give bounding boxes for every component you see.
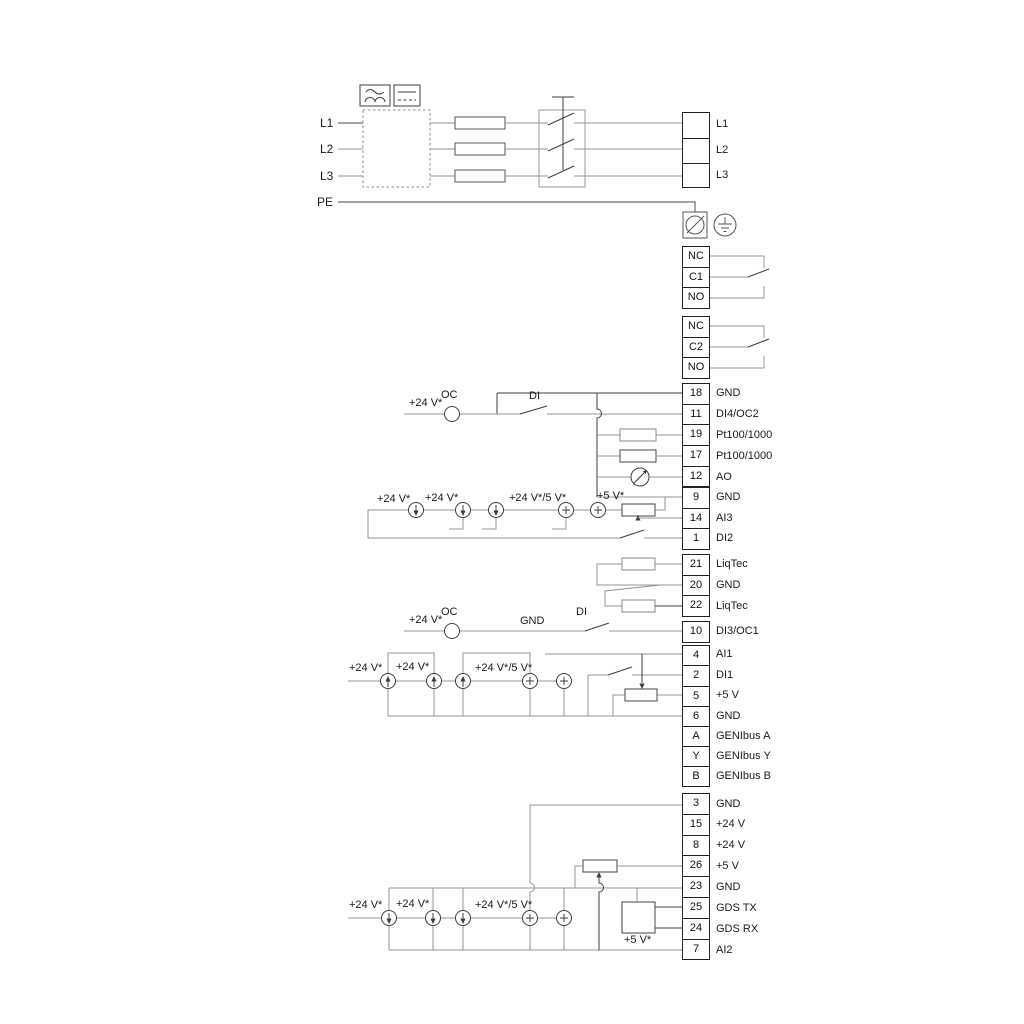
- terminal-2: 2: [683, 665, 709, 685]
- terminal-17: 17: [683, 445, 709, 466]
- potentiometer: [613, 654, 682, 716]
- power24-terminal-block: 3 15 8 26 23 25 24 7: [682, 793, 710, 960]
- current-source-arrow: [382, 911, 397, 926]
- terminal-8: 8: [683, 835, 709, 856]
- label-oc: OC: [441, 389, 458, 401]
- terminal-label: +5 V: [716, 685, 739, 705]
- fuse-l2: [455, 143, 505, 155]
- terminal-label: Pt100/1000: [716, 446, 772, 466]
- terminal-18: 18: [683, 384, 709, 404]
- phase-label-l2: L2: [320, 142, 333, 156]
- gnd-bus: [597, 393, 602, 497]
- terminal-label: GND: [716, 575, 740, 595]
- label-plus24v: +24 V*: [396, 898, 429, 910]
- terminal-20: 20: [683, 575, 709, 596]
- voltage-source-plus: [523, 674, 538, 689]
- terminal-22: 22: [683, 595, 709, 616]
- terminal-1: 1: [683, 528, 709, 549]
- terminal-24: 24: [683, 918, 709, 939]
- current-source-arrow: [456, 911, 471, 926]
- potentiometer: [622, 497, 682, 521]
- resistor: [620, 450, 656, 462]
- terminal-10: 10: [683, 622, 709, 642]
- terminal-a: A: [683, 727, 709, 746]
- terminal-11: 11: [683, 404, 709, 425]
- terminal-label: GDS RX: [716, 919, 758, 939]
- current-source-arrow: [426, 911, 441, 926]
- label-di: DI: [576, 606, 587, 618]
- terminal-label: AI3: [716, 508, 733, 528]
- terminal-19: 19: [683, 424, 709, 445]
- terminal-l1: [683, 113, 709, 138]
- terminal-nc2: NC: [683, 317, 709, 337]
- gnd3-drop: [530, 805, 535, 910]
- label-di: DI: [529, 390, 540, 402]
- terminal-label: DI4/OC2: [716, 404, 759, 424]
- wiring-diagram-svg: [0, 0, 1024, 1024]
- terminal-label: GENIbus Y: [716, 746, 771, 766]
- liqtec-group: [597, 558, 682, 612]
- liqtec-terminal-block: 21 20 22: [682, 554, 710, 617]
- label-plus24v: +24 V*: [377, 493, 410, 505]
- changeover-contact: [748, 269, 769, 277]
- terminal-26: 26: [683, 855, 709, 876]
- current-source-arrow: [409, 503, 424, 518]
- label-gnd: GND: [520, 615, 544, 627]
- terminal-label: GND: [716, 877, 740, 897]
- di-switch: [585, 623, 609, 631]
- terminal-12: 12: [683, 466, 709, 487]
- di-switch: [520, 406, 547, 414]
- current-source-arrow: [381, 674, 396, 689]
- terminal-c1: C1: [683, 267, 709, 288]
- terminal-5: 5: [683, 686, 709, 706]
- phase-label-l3: L3: [320, 169, 333, 183]
- label-plus24v: +24 V*: [396, 661, 429, 673]
- filter-dashed-box: [363, 110, 430, 187]
- terminal-no2: NO: [683, 357, 709, 378]
- terminal-label: AI1: [716, 644, 733, 664]
- label-plus24v: +24 V*: [409, 614, 442, 626]
- terminal-c2: C2: [683, 337, 709, 358]
- mains-terminal-block: [682, 112, 710, 188]
- label-plus24v: +24 V*: [349, 662, 382, 674]
- io2-terminal-block: 9 14 1: [682, 487, 710, 550]
- label-plus5v: +5 V*: [597, 490, 624, 502]
- relay1-terminal-block: NC C1 NO: [682, 246, 710, 309]
- current-source-arrow: [489, 503, 504, 518]
- genibus-terminal-block: A Y B: [682, 726, 710, 787]
- di2-switch: [620, 530, 644, 538]
- terminal-label: L1: [716, 114, 728, 134]
- terminal-no1: NO: [683, 287, 709, 308]
- terminal-label: DI3/OC1: [716, 621, 759, 641]
- resistor: [622, 558, 655, 570]
- disconnect-switch: [539, 97, 585, 187]
- terminal-label: GENIbus B: [716, 766, 771, 786]
- terminal-label: LiqTec: [716, 554, 748, 574]
- terminal-14: 14: [683, 508, 709, 529]
- dc-symbol-box: [394, 85, 420, 106]
- label-plus24v: +24 V*: [349, 899, 382, 911]
- ac-symbol-box: [360, 85, 390, 106]
- terminal-6: 6: [683, 706, 709, 726]
- current-source-arrow: [456, 503, 471, 518]
- terminal-label: LiqTec: [716, 596, 748, 616]
- analog-output-meter: [631, 468, 649, 486]
- relay2-terminal-block: NC C2 NO: [682, 316, 710, 379]
- current-source-arrow: [427, 674, 442, 689]
- terminal-label: GND: [716, 487, 740, 507]
- current-source-arrow: [456, 674, 471, 689]
- terminal-label: +24 V: [716, 835, 745, 855]
- changeover-contact: [748, 339, 769, 347]
- voltage-source-plus: [557, 911, 572, 926]
- di1-switch: [608, 667, 632, 675]
- resistor: [620, 429, 656, 441]
- terminal-label: GND: [716, 794, 740, 814]
- voltage-source-plus: [591, 503, 606, 518]
- gds-sensor-box: [622, 888, 682, 933]
- phase-label-l1: L1: [320, 116, 333, 130]
- label-plus24v: +24 V*: [409, 397, 442, 409]
- terminal-21: 21: [683, 555, 709, 575]
- terminal-l2: [683, 138, 709, 164]
- label-plus24v-5v: +24 V*/5 V*: [509, 492, 566, 504]
- terminal-label: L2: [716, 140, 728, 160]
- ai1-terminal-block: 4 2 5 6: [682, 645, 710, 728]
- terminal-label: L3: [716, 165, 728, 185]
- oc-circle: [445, 624, 460, 639]
- earth-ground-symbol: [714, 214, 736, 236]
- terminal-label: DI2: [716, 528, 733, 548]
- terminal-y: Y: [683, 746, 709, 766]
- relay-output-1: [710, 256, 769, 298]
- terminal-23: 23: [683, 876, 709, 897]
- terminal-label: GDS TX: [716, 898, 757, 918]
- label-plus24v: +24 V*: [425, 492, 458, 504]
- terminal-label: GND: [716, 706, 740, 726]
- power24-group: [348, 805, 682, 950]
- resistor: [622, 600, 655, 612]
- voltage-source-plus: [557, 674, 572, 689]
- voltage-source-plus: [523, 911, 538, 926]
- pe-wire: [338, 202, 695, 212]
- phase-label-pe: PE: [317, 195, 333, 209]
- terminal-label: DI1: [716, 665, 733, 685]
- terminal-25: 25: [683, 897, 709, 918]
- terminal-l3: [683, 163, 709, 189]
- terminal-b: B: [683, 766, 709, 786]
- io-group-1: [404, 393, 682, 497]
- label-plus24v-5v: +24 V*/5 V*: [475, 662, 532, 674]
- screw-terminal: [683, 212, 707, 238]
- wiring-diagram-page: L1 L2 L3 PE L1 L2 L3 NC C1 NO NC C2 NO 1…: [0, 0, 1024, 1024]
- label-plus5v: +5 V*: [624, 934, 651, 946]
- terminal-9: 9: [683, 488, 709, 508]
- oc-circle: [445, 407, 460, 422]
- voltage-source-plus: [559, 503, 574, 518]
- terminal-4: 4: [683, 646, 709, 665]
- terminal-label: GENIbus A: [716, 726, 770, 746]
- terminal-label: AO: [716, 467, 732, 487]
- terminal-15: 15: [683, 814, 709, 835]
- terminal-label: Pt100/1000: [716, 425, 772, 445]
- terminal-3: 3: [683, 794, 709, 814]
- relay-output-2: [710, 326, 769, 368]
- fuse-l1: [455, 117, 505, 129]
- terminal-7: 7: [683, 939, 709, 960]
- terminal-label: AI2: [716, 940, 733, 960]
- mains-section: [338, 85, 736, 238]
- terminal-nc1: NC: [683, 247, 709, 267]
- fuse-l3: [455, 170, 505, 182]
- label-plus24v-5v: +24 V*/5 V*: [475, 899, 532, 911]
- terminal-label: GND: [716, 383, 740, 403]
- di3-terminal-block: 10: [682, 621, 710, 643]
- terminal-label: +24 V: [716, 814, 745, 834]
- label-oc: OC: [441, 606, 458, 618]
- terminal-label: +5 V: [716, 856, 739, 876]
- io1-terminal-block: 18 11 19 17 12: [682, 383, 710, 487]
